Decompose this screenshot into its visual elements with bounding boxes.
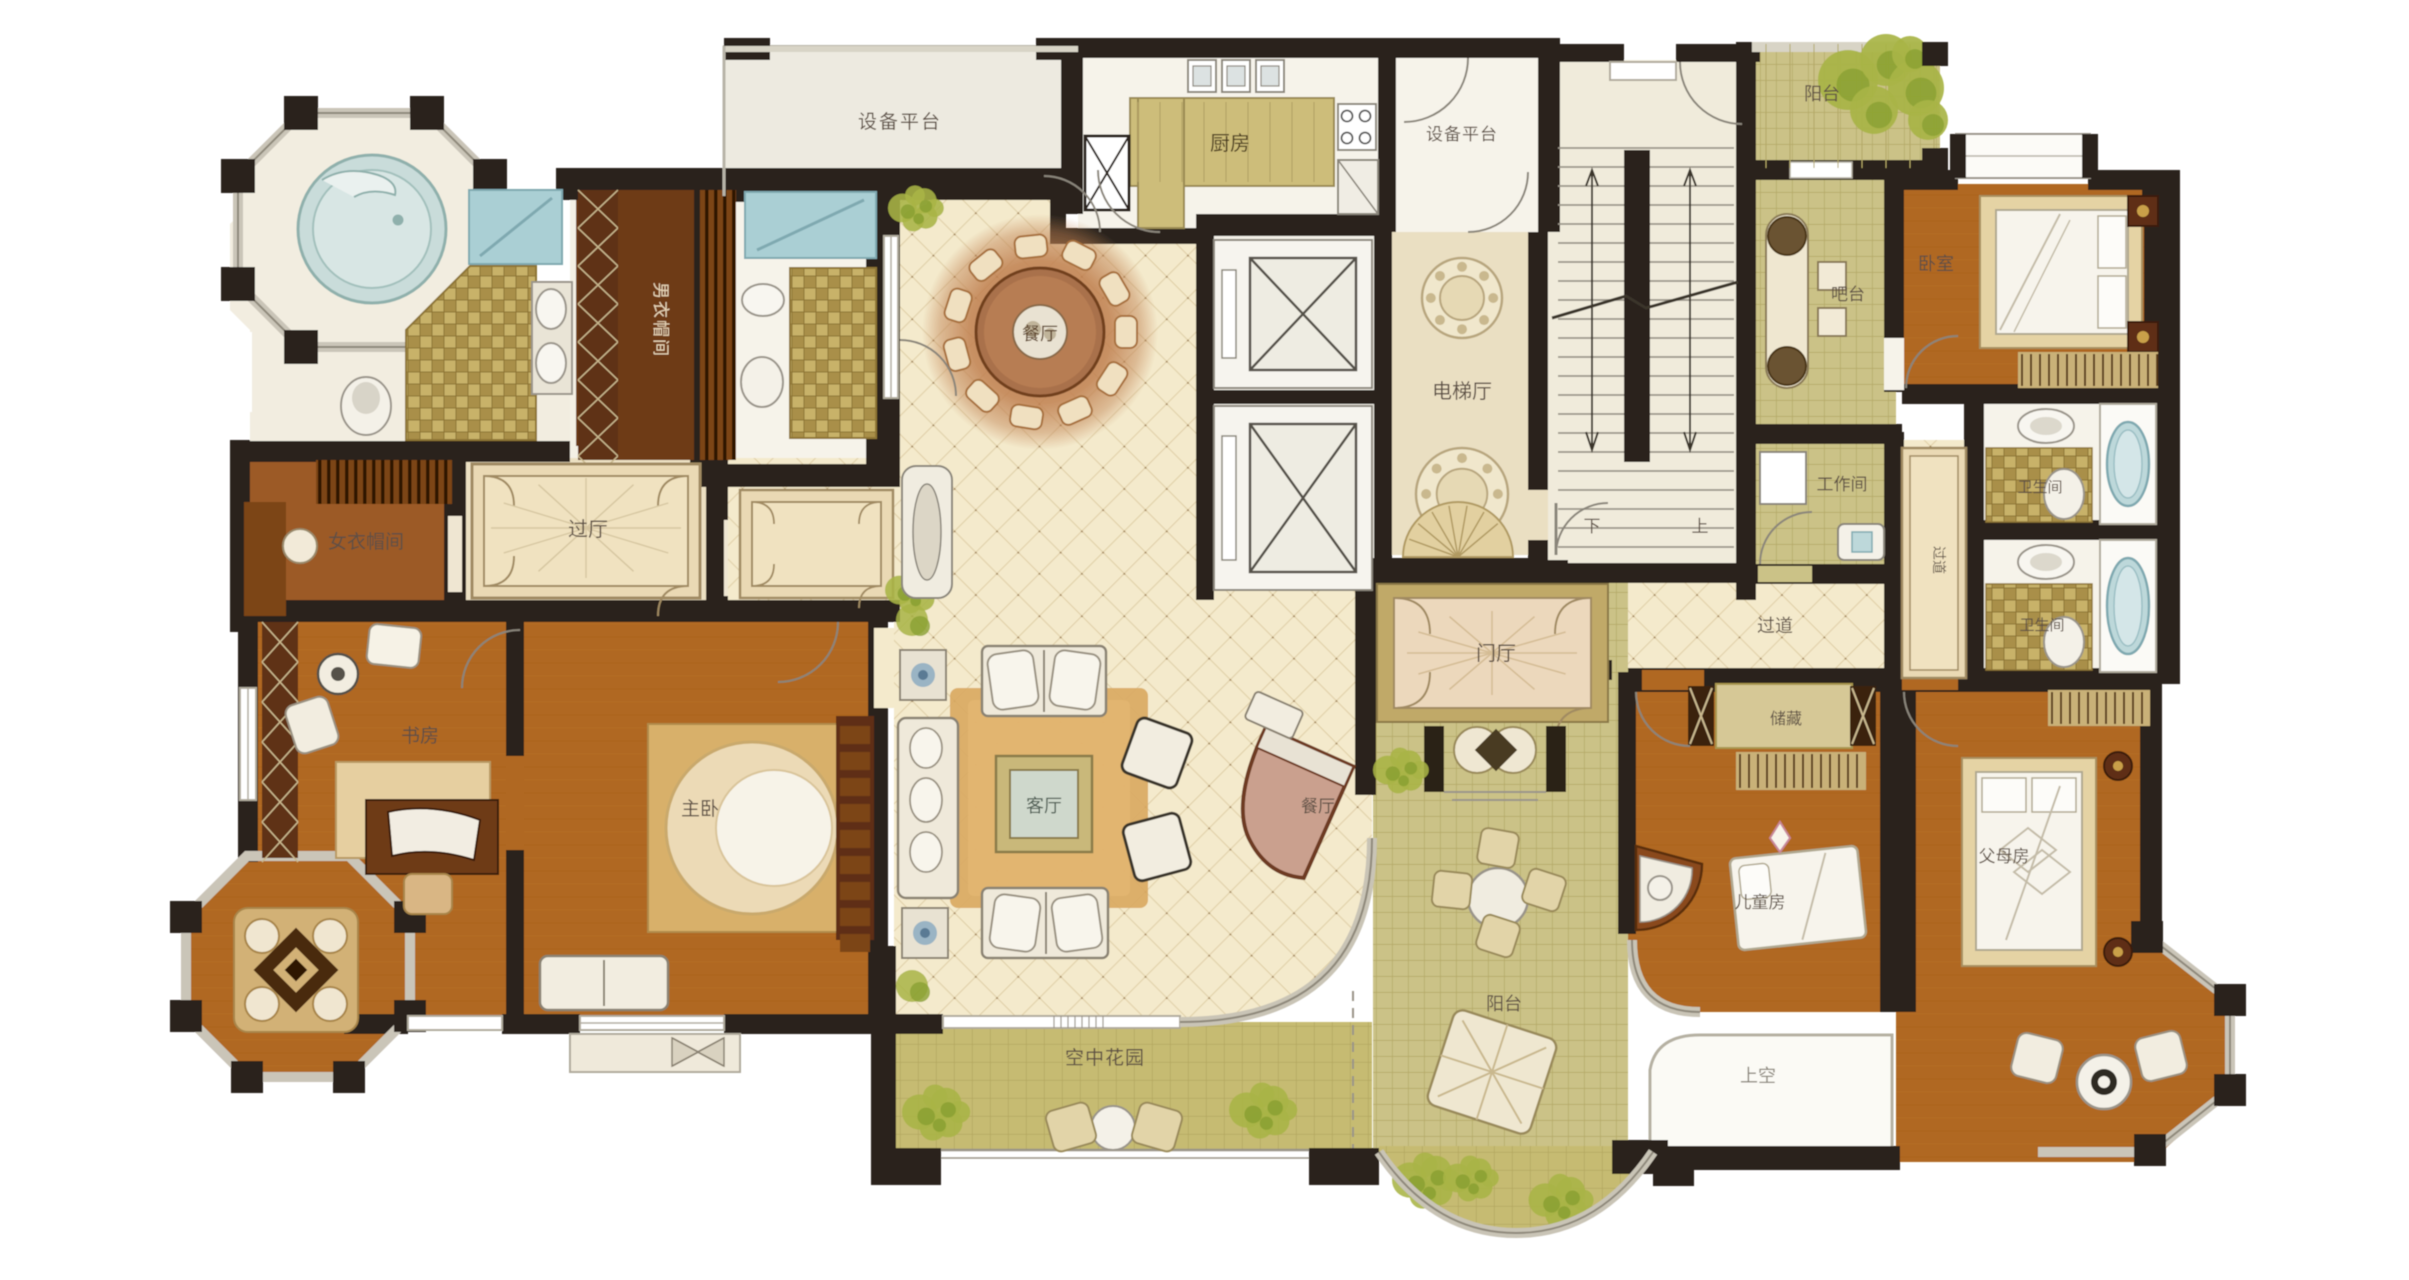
svg-text:过道: 过道 — [1931, 546, 1947, 574]
svg-text:女衣帽间: 女衣帽间 — [328, 531, 404, 553]
svg-text:储藏: 储藏 — [1770, 710, 1802, 728]
svg-text:男衣帽间: 男衣帽间 — [651, 282, 670, 358]
svg-text:过厅: 过厅 — [568, 518, 608, 541]
svg-text:设备平台: 设备平台 — [1426, 125, 1498, 144]
svg-text:下: 下 — [1584, 517, 1601, 536]
svg-text:卧室: 卧室 — [1918, 254, 1954, 274]
svg-text:设备平台: 设备平台 — [858, 111, 942, 133]
svg-text:上: 上 — [1692, 517, 1709, 536]
svg-text:儿童房: 儿童房 — [1735, 893, 1786, 912]
svg-text:主卧: 主卧 — [681, 798, 719, 820]
svg-text:工作间: 工作间 — [1817, 475, 1868, 494]
svg-text:吧台: 吧台 — [1831, 285, 1865, 304]
svg-text:厨房: 厨房 — [1210, 132, 1250, 155]
svg-text:阳台: 阳台 — [1804, 84, 1840, 104]
svg-text:父母房: 父母房 — [1979, 847, 2030, 866]
svg-text:书房: 书房 — [401, 725, 439, 747]
svg-text:卫生间: 卫生间 — [2019, 617, 2064, 634]
svg-text:阳台: 阳台 — [1486, 994, 1522, 1014]
svg-text:门厅: 门厅 — [1476, 642, 1516, 665]
svg-text:餐厅: 餐厅 — [1022, 324, 1058, 344]
svg-text:卫生间: 卫生间 — [2017, 479, 2062, 496]
svg-text:过道: 过道 — [1757, 616, 1793, 636]
svg-text:空中花园: 空中花园 — [1065, 1047, 1145, 1069]
svg-text:上空: 上空 — [1740, 1066, 1776, 1086]
svg-text:客厅: 客厅 — [1026, 796, 1062, 816]
svg-text:电梯厅: 电梯厅 — [1432, 380, 1492, 403]
svg-text:餐厅: 餐厅 — [1301, 797, 1335, 816]
